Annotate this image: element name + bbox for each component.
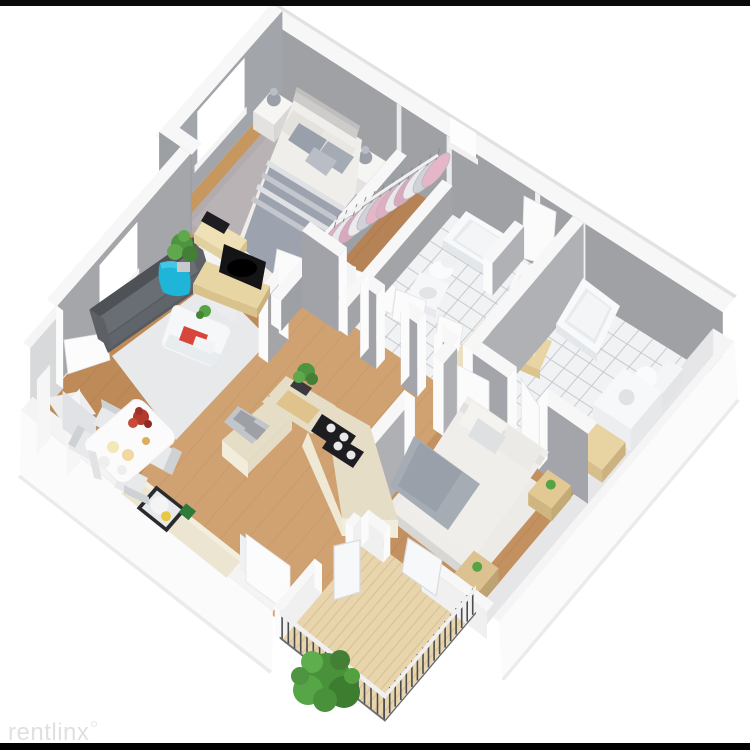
svg-text:rentlinx: rentlinx xyxy=(8,719,89,746)
